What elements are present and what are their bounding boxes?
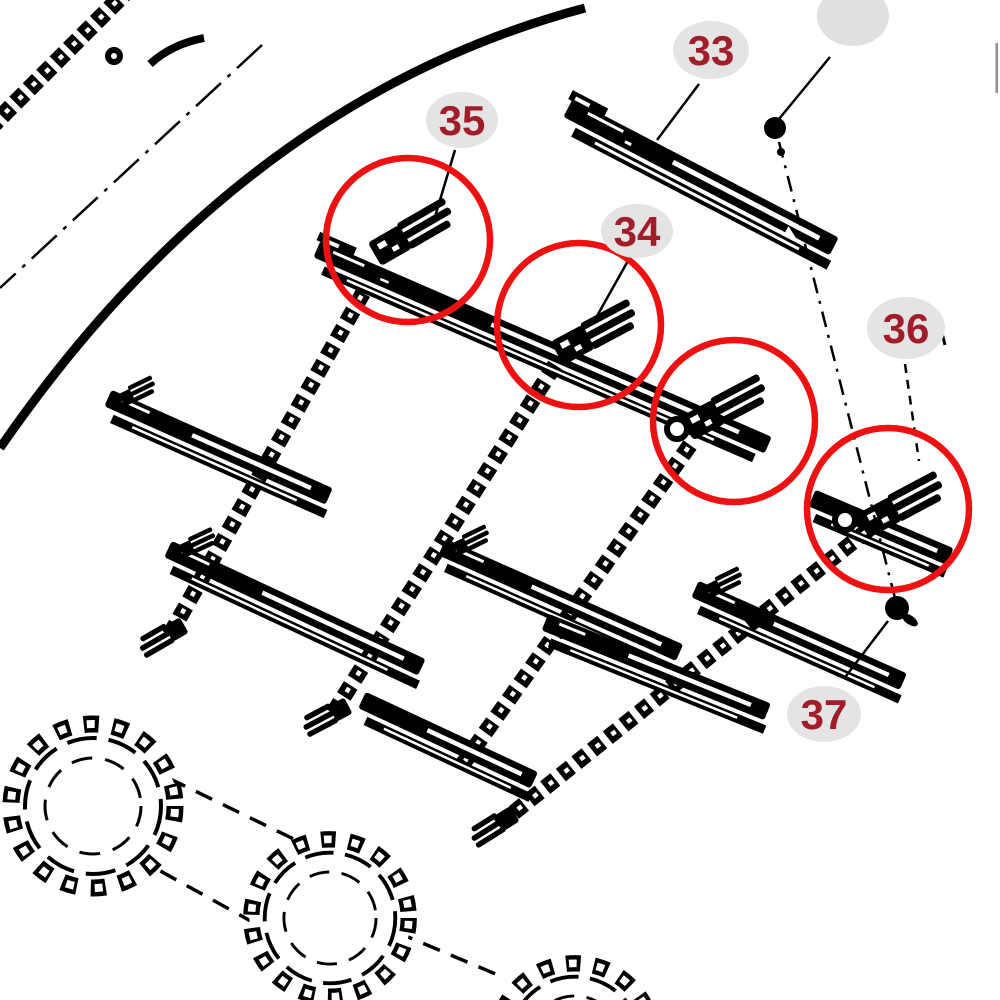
clip-part-35 xyxy=(367,197,458,267)
callout-badge-35[interactable]: 35 xyxy=(426,92,498,148)
sprocket-middle xyxy=(249,837,410,998)
callout-label-36: 36 xyxy=(883,305,930,352)
housing-outline-arc xyxy=(0,8,585,448)
leader-33 xyxy=(657,84,699,140)
leader-top-partial xyxy=(779,57,830,119)
sprocket-left xyxy=(9,722,177,890)
chain-strand-corner xyxy=(0,0,132,132)
callout-badges: 33 34 35 36 37 xyxy=(426,0,945,742)
callout-badge-33[interactable]: 33 xyxy=(673,21,749,79)
callout-label-34: 34 xyxy=(614,208,661,255)
clip-part-34 xyxy=(550,298,642,365)
right-edge-artifact xyxy=(996,43,999,93)
slat-row4-left xyxy=(353,692,542,802)
diagram-drawing: 33 34 35 36 37 xyxy=(0,0,1000,1000)
bolt-top-icon xyxy=(764,117,786,139)
ring-fastener-icon xyxy=(667,419,687,439)
callout-label-35: 35 xyxy=(439,97,486,144)
chain-strand-2 xyxy=(299,365,555,738)
leader-36 xyxy=(905,364,919,461)
callout-label-37: 37 xyxy=(801,691,848,738)
sprocket-right xyxy=(494,961,655,1000)
callout-label-33: 33 xyxy=(688,27,735,74)
callout-badge-36[interactable]: 36 xyxy=(867,297,945,359)
housing-arc-group xyxy=(0,8,585,448)
sprocket-shaft-group xyxy=(9,722,656,1000)
housing-arc-fragment xyxy=(150,38,204,64)
callout-badge-partial[interactable] xyxy=(817,0,889,46)
ring-fastener-icon xyxy=(835,510,855,530)
callout-badge-34[interactable]: 34 xyxy=(601,204,673,258)
slat-row3-right xyxy=(686,554,922,703)
parts-diagram-canvas: 33 34 35 36 37 xyxy=(0,0,1000,1000)
callout-badge-37[interactable]: 37 xyxy=(787,686,861,742)
